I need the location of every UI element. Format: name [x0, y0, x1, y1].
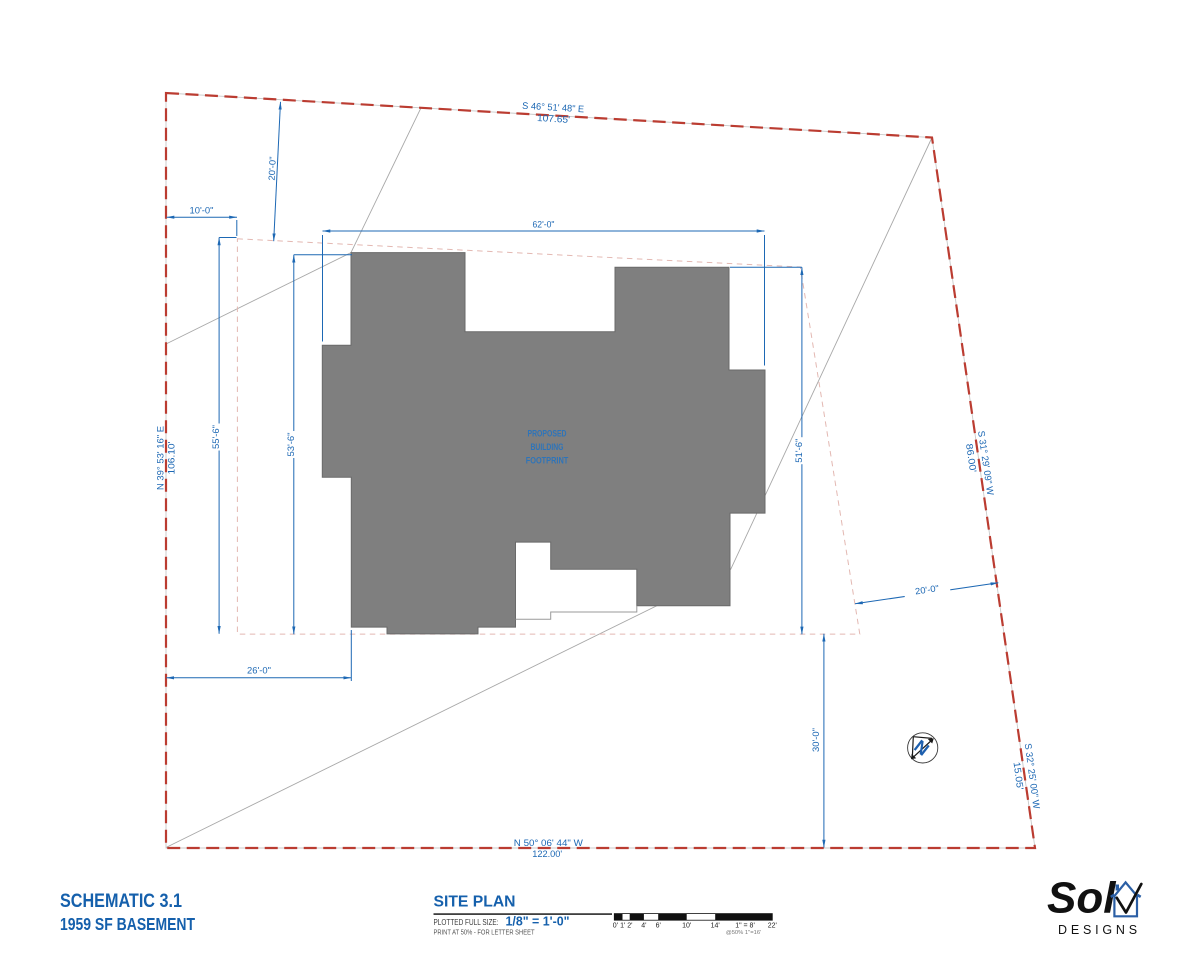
svg-text:2': 2' — [627, 923, 632, 930]
svg-text:Sol: Sol — [1047, 874, 1116, 923]
svg-text:FOOTPRINT: FOOTPRINT — [526, 456, 569, 466]
svg-text:SCHEMATIC 3.1: SCHEMATIC 3.1 — [60, 891, 182, 912]
svg-text:BUILDING: BUILDING — [531, 442, 564, 452]
svg-text:62'-0": 62'-0" — [533, 220, 555, 230]
svg-text:0': 0' — [613, 923, 618, 930]
svg-text:14': 14' — [711, 923, 720, 930]
svg-text:122.00': 122.00' — [532, 849, 562, 860]
svg-text:1959 SF BASEMENT: 1959 SF BASEMENT — [60, 914, 195, 934]
svg-text:107.65': 107.65' — [537, 113, 571, 126]
svg-text:22': 22' — [768, 923, 777, 930]
svg-text:1': 1' — [620, 923, 625, 930]
svg-text:1" = 8': 1" = 8' — [735, 923, 755, 930]
svg-text:N 39° 53' 16" E: N 39° 53' 16" E — [155, 426, 166, 490]
svg-text:1/8" = 1'-0": 1/8" = 1'-0" — [506, 915, 570, 929]
svg-text:30'-0": 30'-0" — [811, 728, 821, 752]
svg-text:6': 6' — [656, 923, 661, 930]
svg-text:SITE PLAN: SITE PLAN — [434, 893, 516, 910]
svg-text:10': 10' — [682, 923, 691, 930]
svg-text:10'-0": 10'-0" — [190, 206, 214, 216]
svg-text:N 50° 06' 44" W: N 50° 06' 44" W — [514, 838, 583, 849]
svg-text:DESIGNS: DESIGNS — [1058, 923, 1141, 937]
svg-text:53'-6": 53'-6" — [286, 433, 296, 457]
svg-text:4': 4' — [641, 923, 646, 930]
svg-text:PLOTTED FULL SIZE:: PLOTTED FULL SIZE: — [434, 918, 499, 927]
svg-text:20'-0": 20'-0" — [267, 156, 278, 180]
svg-text:51'-6": 51'-6" — [794, 439, 804, 463]
svg-text:55'-6": 55'-6" — [211, 425, 221, 449]
svg-text:26'-0": 26'-0" — [247, 666, 271, 676]
svg-text:106.10': 106.10' — [166, 441, 177, 474]
svg-text:PRINT AT 50% - FOR LETTER SHEE: PRINT AT 50% - FOR LETTER SHEET — [434, 930, 536, 937]
svg-text:@50% 1"=16': @50% 1"=16' — [726, 930, 761, 936]
svg-text:PROPOSED: PROPOSED — [528, 429, 567, 439]
